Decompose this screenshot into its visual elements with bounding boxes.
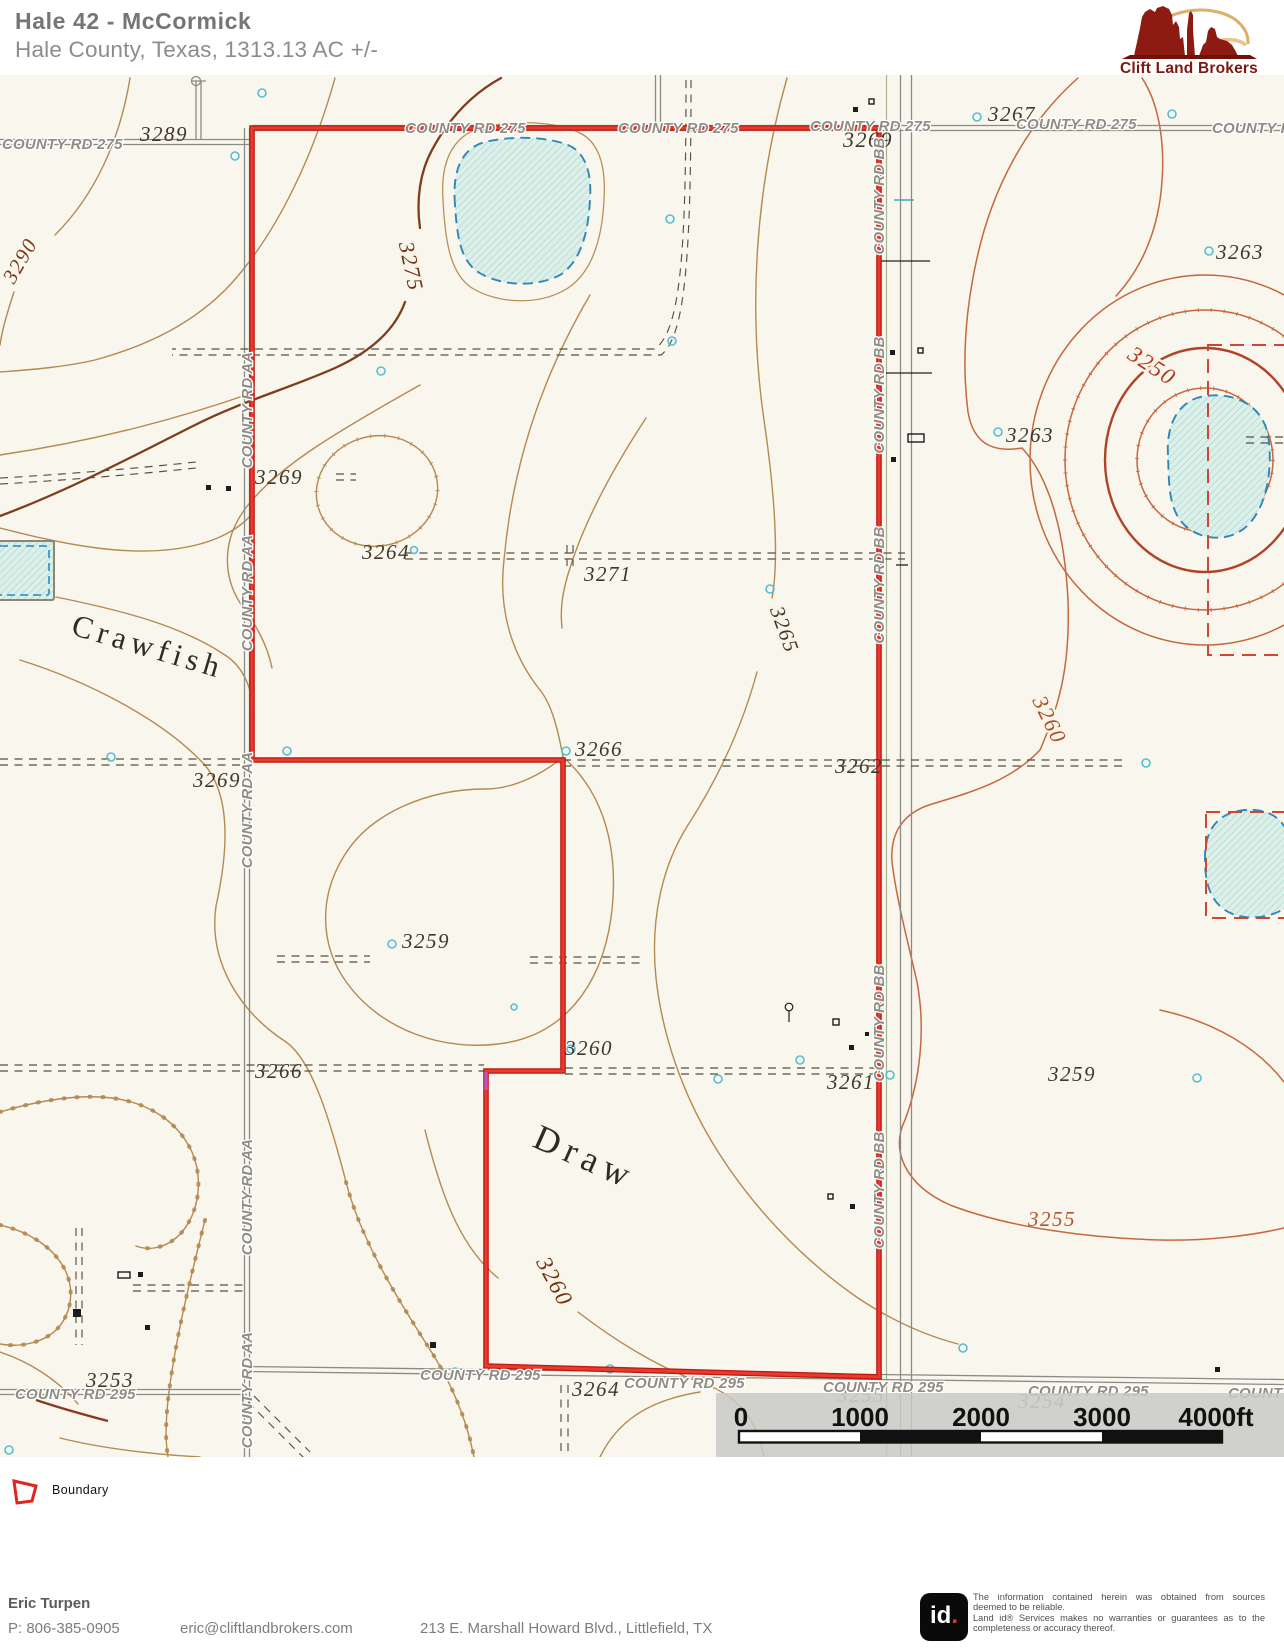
svg-text:3259: 3259 bbox=[1047, 1062, 1096, 1086]
svg-text:COUNTY RD AA: COUNTY RD AA bbox=[239, 1139, 256, 1256]
svg-text:COUNTY RD 275: COUNTY RD 275 bbox=[2, 136, 123, 153]
svg-text:3266: 3266 bbox=[574, 737, 623, 761]
svg-text:3289: 3289 bbox=[139, 122, 188, 146]
svg-text:3266: 3266 bbox=[254, 1059, 303, 1083]
svg-text:3264: 3264 bbox=[571, 1377, 620, 1401]
svg-text:COUNTY RD AA: COUNTY RD AA bbox=[239, 352, 256, 469]
svg-text:3263: 3263 bbox=[1005, 423, 1054, 447]
svg-text:3261: 3261 bbox=[826, 1070, 875, 1094]
svg-text:COUNTY RD 275: COUNTY RD 275 bbox=[1016, 116, 1137, 133]
svg-text:3263: 3263 bbox=[1215, 240, 1264, 264]
svg-text:3260: 3260 bbox=[564, 1036, 613, 1060]
svg-text:3269: 3269 bbox=[254, 465, 303, 489]
svg-text:COUNTY RD AA: COUNTY RD AA bbox=[239, 752, 256, 869]
svg-text:COUNTY RD 275: COUNTY RD 275 bbox=[618, 120, 739, 137]
svg-text:COUNTY RD 295: COUNTY RD 295 bbox=[15, 1386, 136, 1403]
svg-text:3262: 3262 bbox=[834, 754, 883, 778]
svg-text:1000: 1000 bbox=[831, 1402, 889, 1432]
svg-text:COUNTY RD AA: COUNTY RD AA bbox=[239, 535, 256, 652]
svg-text:3255: 3255 bbox=[1027, 1207, 1076, 1231]
svg-text:COUNTY RD BB: COUNTY RD BB bbox=[871, 964, 888, 1081]
svg-text:0: 0 bbox=[734, 1402, 748, 1432]
svg-text:COUNTY RD BB: COUNTY RD BB bbox=[871, 336, 888, 453]
svg-text:3269: 3269 bbox=[192, 768, 241, 792]
svg-text:3264: 3264 bbox=[361, 540, 410, 564]
svg-text:COUNTY RD 275: COUNTY RD 275 bbox=[405, 120, 526, 137]
svg-text:COUNTY RD BB: COUNTY RD BB bbox=[871, 1131, 888, 1248]
svg-text:COUNTY RD 275: COUNTY RD 275 bbox=[1212, 120, 1284, 137]
svg-text:COUNTY RD 295: COUNTY RD 295 bbox=[420, 1367, 541, 1384]
svg-text:3000: 3000 bbox=[1073, 1402, 1131, 1432]
svg-text:3271: 3271 bbox=[583, 562, 632, 586]
svg-text:COUNTY RD AA: COUNTY RD AA bbox=[239, 1332, 256, 1449]
svg-text:COUNTY RD 275: COUNTY RD 275 bbox=[810, 118, 931, 135]
svg-text:COUNTY RD BB: COUNTY RD BB bbox=[871, 526, 888, 643]
svg-text:4000ft: 4000ft bbox=[1178, 1402, 1253, 1432]
svg-text:COUNTY RD BB: COUNTY RD BB bbox=[871, 137, 888, 254]
svg-text:3259: 3259 bbox=[401, 929, 450, 953]
svg-text:2000: 2000 bbox=[952, 1402, 1010, 1432]
svg-text:COUNTY RD 295: COUNTY RD 295 bbox=[624, 1375, 745, 1392]
